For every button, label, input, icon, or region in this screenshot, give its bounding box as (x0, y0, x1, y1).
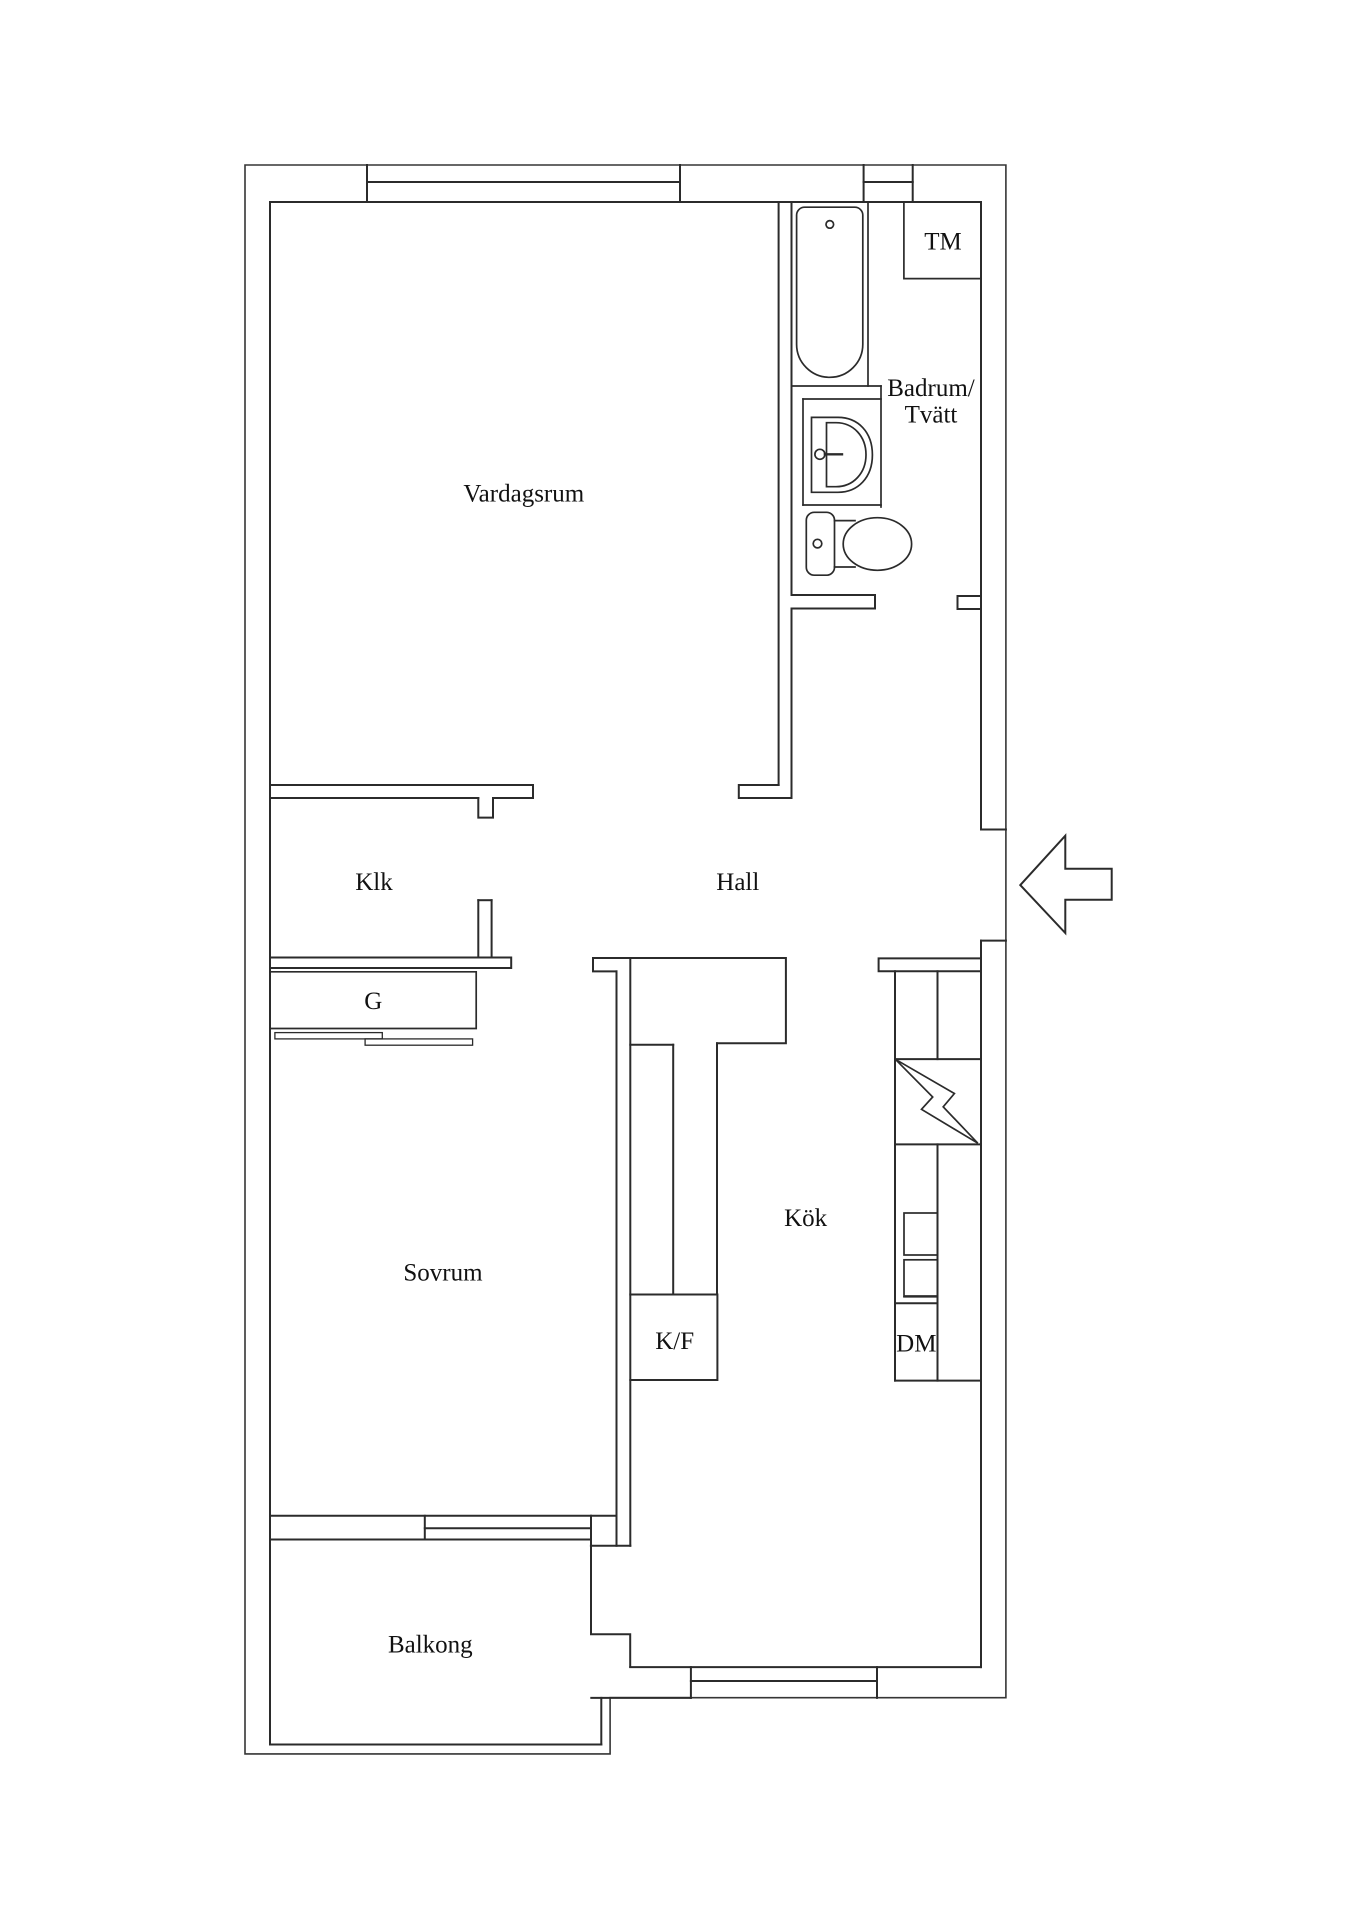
svg-text:Klk: Klk (355, 869, 393, 896)
svg-text:Balkong: Balkong (388, 1631, 473, 1658)
svg-text:Sovrum: Sovrum (403, 1260, 483, 1287)
svg-text:Tvätt: Tvätt (905, 401, 958, 428)
svg-text:Hall: Hall (716, 869, 759, 896)
svg-text:DM: DM (896, 1330, 936, 1357)
svg-text:K/F: K/F (655, 1328, 694, 1355)
svg-text:Vardagsrum: Vardagsrum (463, 480, 584, 507)
svg-text:TM: TM (924, 228, 962, 255)
svg-text:Badrum/: Badrum/ (887, 375, 975, 402)
svg-text:G: G (364, 988, 382, 1015)
svg-text:Kök: Kök (784, 1205, 828, 1232)
